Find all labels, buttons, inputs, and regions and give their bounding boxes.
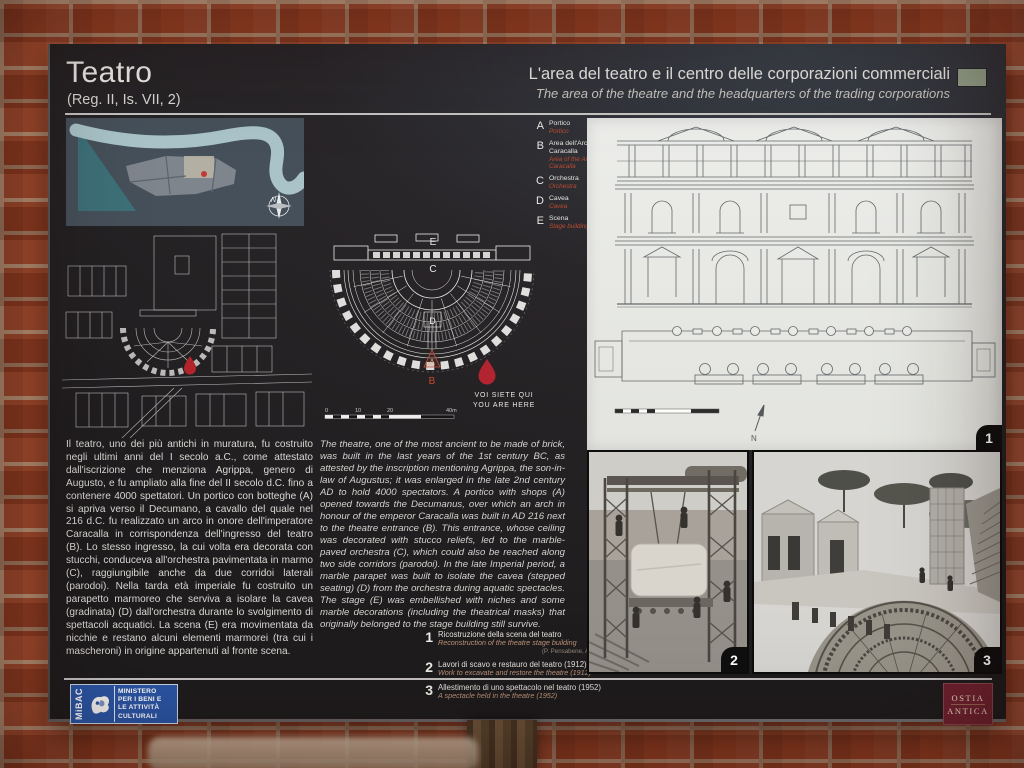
stage-reconstruction-figure: N 1	[587, 118, 1002, 450]
plan-north-arrow-icon: N	[751, 405, 764, 443]
ostia-antica-logo: OSTIA ANTICA	[943, 683, 993, 725]
scaffold-tower	[930, 488, 964, 584]
body-text-italian: Il teatro, uno dei più antichi in muratu…	[66, 439, 313, 658]
svg-text:40m: 40m	[446, 408, 457, 414]
header-divider	[65, 113, 991, 115]
ground-stones	[148, 737, 478, 768]
figure-number-badge-1: 1	[976, 425, 1002, 450]
svg-text:20: 20	[387, 408, 393, 414]
photo-1952-spectacle: 3	[752, 450, 1002, 674]
footer-divider	[64, 678, 992, 680]
mibac-logo: MiBAC MINISTERO PER I BENI E LE ATTIVITÀ…	[70, 684, 178, 724]
photo-1952-content	[754, 452, 1000, 672]
you-are-here-marker	[479, 359, 496, 385]
plan-label-c: C	[429, 264, 436, 275]
figure-number-badge-2: 2	[721, 647, 747, 672]
information-panel: Teatro (Reg. II, Is. VII, 2) L'area del …	[48, 44, 1006, 722]
you-are-here-it: VOI SIETE QUI	[474, 392, 533, 399]
section-title: L'area del teatro e il centro delle corp…	[390, 65, 950, 101]
page-title: Teatro	[66, 56, 152, 90]
brick-wall-photo: Teatro (Reg. II, Is. VII, 2) L'area del …	[0, 0, 1024, 768]
page-subtitle: (Reg. II, Is. VII, 2)	[67, 92, 181, 108]
mibac-emblem-icon	[85, 686, 115, 722]
plan-label-b: B	[429, 376, 436, 387]
plan-label-e: E	[430, 237, 437, 248]
section-title-italian: L'area del teatro e il centro delle corp…	[390, 65, 950, 84]
body-text-english: The theatre, one of the most ancient to …	[320, 439, 565, 631]
you-are-here-en: YOU ARE HERE	[473, 402, 535, 409]
caption-3: 3 Allestimento di uno spettacolo nel tea…	[420, 683, 616, 701]
green-color-chip	[958, 69, 986, 86]
stage-reconstruction-drawing: N	[587, 118, 1002, 450]
svg-text:0: 0	[325, 408, 328, 414]
plan-label-d: D	[429, 316, 436, 326]
scale-bar: 0 10 20 40m	[325, 408, 457, 419]
you-are-here-dot	[201, 171, 207, 177]
svg-text:10: 10	[355, 408, 361, 414]
svg-text:N: N	[751, 434, 757, 443]
section-title-english: The area of the theatre and the headquar…	[390, 86, 950, 101]
theatre-plan: E C D A B VOI SIETE QUI YOU ARE HERE 0 1…	[320, 226, 562, 428]
photo-1912-content	[589, 452, 747, 672]
photo-1912-excavation: 2	[587, 450, 749, 674]
mibac-acronym: MiBAC	[74, 688, 84, 720]
plan-scale-bar	[615, 409, 719, 413]
plan-label-a: A	[429, 357, 435, 367]
site-overview-map: N	[66, 118, 304, 226]
excavation-plan	[62, 228, 312, 438]
figure-number-badge-3: 3	[974, 647, 1000, 672]
